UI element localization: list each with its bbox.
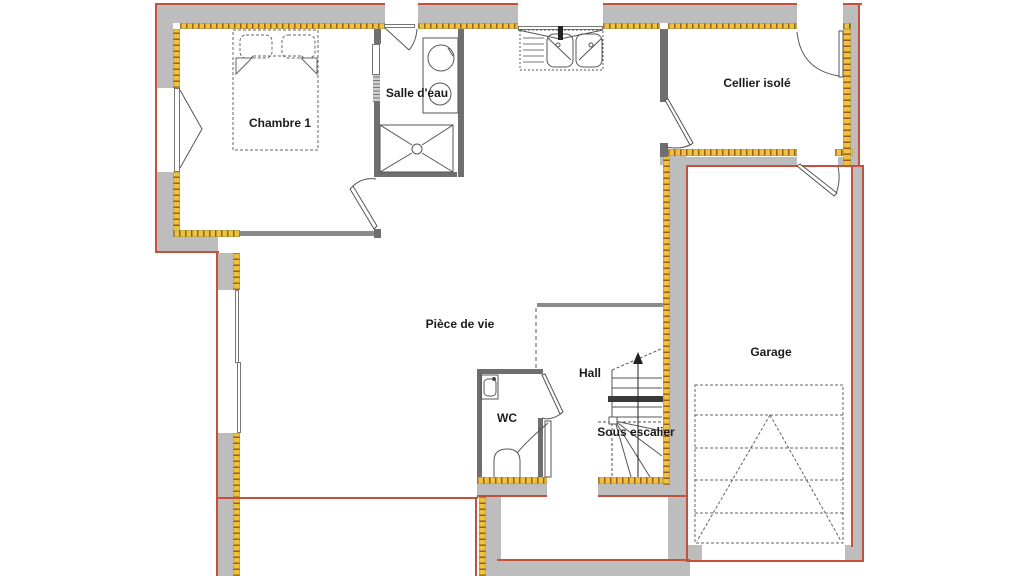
- stairs-cut-bar: [608, 396, 663, 402]
- door-leaf-sde-top: [385, 28, 409, 50]
- door-swing-sde-top: [409, 29, 417, 50]
- stairs-up-arrowhead: [633, 352, 643, 364]
- shower-diagonal: [422, 125, 453, 145]
- room-label-wc: WC: [497, 411, 517, 425]
- sink-diagonal: [579, 38, 602, 60]
- plan-symbols: [0, 0, 1024, 576]
- double-bed: [233, 30, 318, 150]
- door-swing-cellier-top: [797, 32, 839, 76]
- shower-diagonal: [380, 125, 412, 145]
- room-label-cellier: Cellier isolé: [723, 76, 790, 90]
- sink-drainer-hatch: [523, 38, 544, 62]
- room-label-sous-escalier: Sous escalier: [597, 425, 674, 439]
- door-leaf-cellier-garage: [797, 164, 837, 196]
- room-label-hall: Hall: [579, 366, 601, 380]
- door-leaf-wc: [542, 374, 563, 414]
- door-swing-chambre: [352, 179, 376, 187]
- door-leaf-entrance: [545, 421, 551, 477]
- room-label-salle-eau: Salle d'eau: [386, 86, 448, 100]
- door-swing-wc: [542, 413, 562, 419]
- room-label-chambre1: Chambre 1: [249, 116, 311, 130]
- door-leaf-cellier-west: [665, 99, 693, 145]
- sink-faucet: [558, 26, 563, 40]
- wc-washbasin-tap: [493, 378, 496, 381]
- washbasin: [428, 45, 454, 71]
- door-leaf-cellier-top: [839, 31, 843, 77]
- wc-washbasin-bowl: [484, 379, 496, 396]
- window-swing-chambre: [180, 90, 202, 168]
- toilet: [494, 449, 520, 477]
- room-label-piece-de-vie: Pièce de vie: [426, 317, 495, 331]
- door-swing-cellier-west: [666, 144, 692, 148]
- shower-diagonal: [422, 153, 453, 172]
- shower-drain: [412, 144, 422, 154]
- door-swing-cellier-garage: [836, 167, 839, 194]
- sink-diagonal: [548, 38, 571, 60]
- stairs-newel: [609, 417, 617, 424]
- door-leaf-chambre: [350, 186, 377, 229]
- floor-plan: Chambre 1 Salle d'eau Cellier isolé Pièc…: [0, 0, 1024, 576]
- garage-door-marking: [695, 385, 843, 543]
- room-label-garage: Garage: [750, 345, 791, 359]
- sde-fixture-counter: [423, 38, 458, 113]
- sink-drain-right: [589, 43, 593, 47]
- shower-diagonal: [380, 153, 412, 172]
